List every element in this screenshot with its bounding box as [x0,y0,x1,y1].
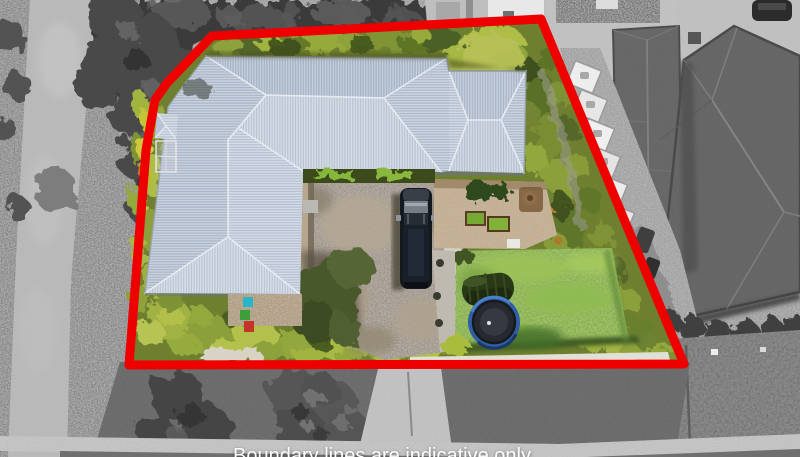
svg-text:Boundary lines are indicative: Boundary lines are indicative only [233,445,531,457]
